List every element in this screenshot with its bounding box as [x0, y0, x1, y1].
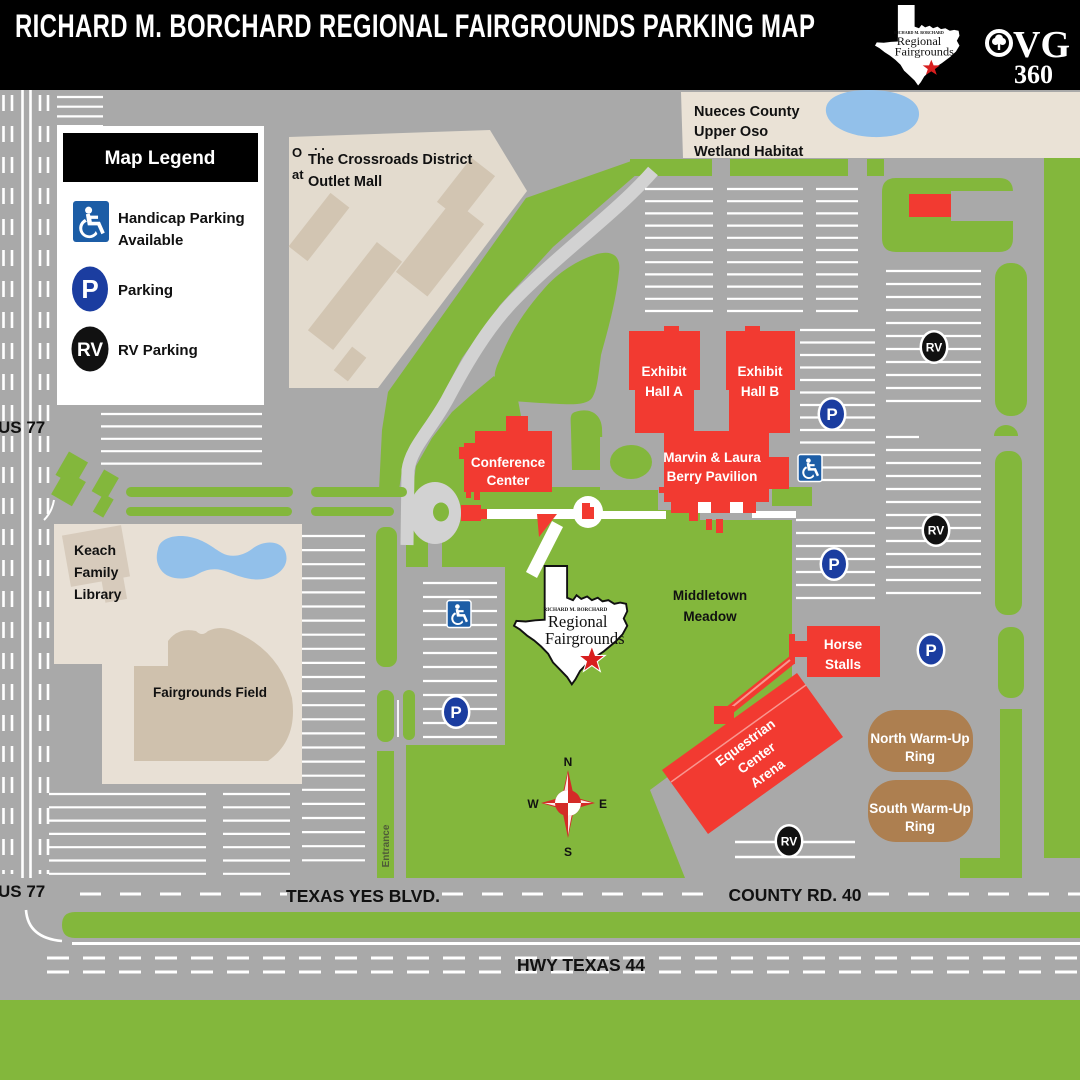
svg-text:Wetland Habitat: Wetland Habitat — [694, 144, 803, 160]
svg-text:O: O — [292, 145, 302, 160]
svg-text:RV: RV — [781, 834, 797, 848]
svg-text:North Warm-Up: North Warm-Up — [870, 731, 969, 746]
svg-text:Stalls: Stalls — [825, 657, 861, 672]
svg-text:Hall A: Hall A — [645, 384, 683, 399]
svg-text:Conference: Conference — [471, 455, 546, 470]
svg-text:TEXAS YES BLVD.: TEXAS YES BLVD. — [286, 886, 440, 906]
svg-text:360: 360 — [1014, 60, 1053, 89]
svg-text:W: W — [527, 797, 539, 811]
svg-text:Ring: Ring — [905, 819, 935, 834]
svg-text:E: E — [599, 797, 607, 811]
svg-text:RV: RV — [926, 340, 942, 354]
svg-text:Fairgrounds: Fairgrounds — [545, 629, 625, 648]
svg-text:P: P — [826, 405, 837, 424]
svg-text:Keach: Keach — [74, 542, 116, 558]
svg-text:Upper Oso: Upper Oso — [694, 124, 768, 140]
svg-text:Parking: Parking — [118, 282, 173, 299]
svg-text:RV: RV — [77, 340, 103, 361]
svg-text:Available: Available — [118, 232, 183, 249]
svg-text:Entrance: Entrance — [381, 824, 392, 867]
svg-text:Family: Family — [74, 564, 119, 580]
svg-text:Center: Center — [487, 473, 531, 488]
svg-text:South Warm-Up: South Warm-Up — [869, 801, 971, 816]
svg-text:. .: . . — [314, 138, 325, 153]
svg-text:Middletown: Middletown — [673, 588, 747, 603]
svg-text:Handicap Parking: Handicap Parking — [118, 210, 245, 227]
svg-text:Ring: Ring — [905, 749, 935, 764]
svg-text:S: S — [564, 845, 572, 859]
svg-text:Outlet Mall: Outlet Mall — [308, 174, 382, 190]
svg-text:Marvin & Laura: Marvin & Laura — [663, 450, 761, 465]
svg-text:N: N — [564, 755, 573, 769]
svg-text:Exhibit: Exhibit — [641, 364, 687, 379]
svg-text:at: at — [292, 167, 304, 182]
svg-text:P: P — [828, 555, 839, 574]
svg-text:P: P — [81, 274, 98, 304]
svg-text:Exhibit: Exhibit — [737, 364, 783, 379]
svg-text:RV Parking: RV Parking — [118, 342, 198, 359]
svg-text:RV: RV — [928, 523, 944, 537]
svg-text:P: P — [925, 641, 936, 660]
svg-text:Fairgrounds: Fairgrounds — [895, 45, 955, 59]
svg-text:Horse: Horse — [824, 637, 863, 652]
svg-text:RICHARD M. BORCHARD REGIONAL F: RICHARD M. BORCHARD REGIONAL FAIRGROUNDS… — [15, 8, 815, 44]
svg-text:US 77: US 77 — [0, 882, 45, 901]
svg-text:Fairgrounds Field: Fairgrounds Field — [153, 685, 267, 700]
svg-text:P: P — [450, 703, 461, 722]
svg-text:Meadow: Meadow — [683, 609, 737, 624]
svg-text:US 77: US 77 — [0, 418, 45, 437]
svg-text:The Crossroads District: The Crossroads District — [308, 152, 473, 168]
svg-text:COUNTY RD. 40: COUNTY RD. 40 — [729, 885, 862, 905]
svg-text:Library: Library — [74, 586, 122, 602]
svg-text:Berry Pavilion: Berry Pavilion — [667, 469, 758, 484]
svg-text:Map Legend: Map Legend — [105, 148, 216, 169]
svg-text:Nueces County: Nueces County — [694, 104, 800, 120]
svg-text:HWY TEXAS 44: HWY TEXAS 44 — [517, 955, 645, 975]
svg-text:Hall B: Hall B — [741, 384, 780, 399]
